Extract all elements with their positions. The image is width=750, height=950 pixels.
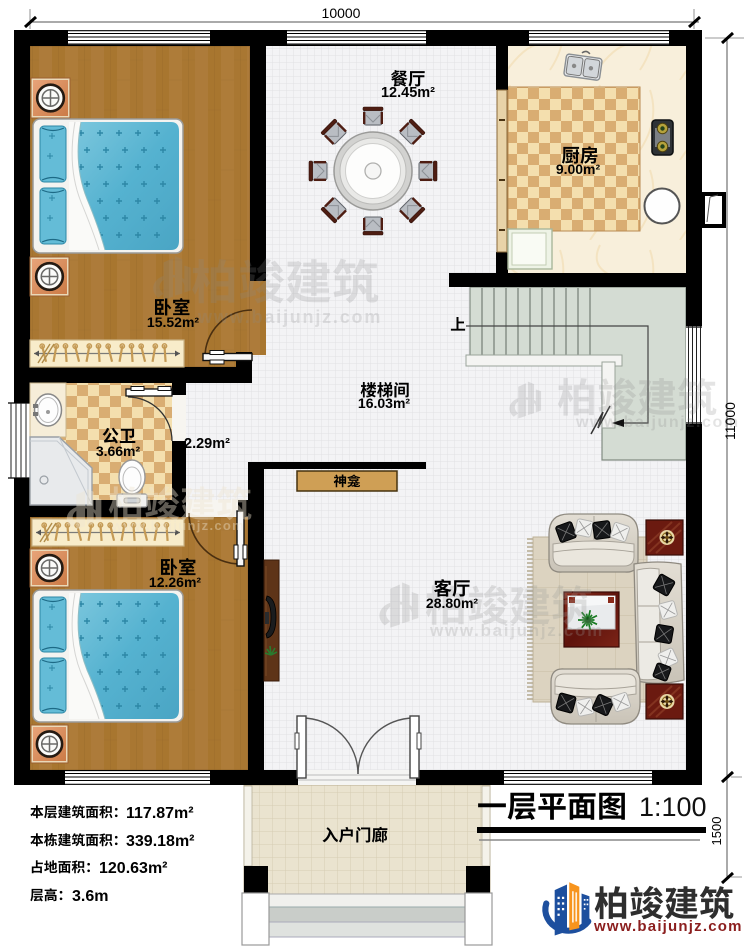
svg-text:11000: 11000 (722, 402, 738, 440)
svg-text:www.baijunjz.com: www.baijunjz.com (111, 518, 245, 533)
svg-text:10000: 10000 (322, 5, 361, 21)
svg-text:www.baijunjz.com: www.baijunjz.com (197, 307, 382, 327)
svg-text:www.baijunjz.com: www.baijunjz.com (575, 414, 740, 431)
svg-text:15.52m²: 15.52m² (147, 314, 199, 330)
svg-text:28.80m²: 28.80m² (426, 595, 478, 611)
svg-text:1:100: 1:100 (639, 792, 707, 822)
svg-text:9.00m²: 9.00m² (556, 161, 601, 177)
svg-text:2.29m²: 2.29m² (184, 436, 230, 452)
svg-text:12.45m²: 12.45m² (381, 85, 435, 101)
svg-text:339.18m²: 339.18m² (126, 833, 195, 850)
svg-text:1500: 1500 (709, 817, 724, 846)
svg-text:12.26m²: 12.26m² (149, 574, 201, 590)
svg-text:www.baijunjz.com: www.baijunjz.com (429, 621, 604, 640)
svg-text:3.66m²: 3.66m² (96, 443, 141, 459)
svg-text:16.03m²: 16.03m² (358, 395, 410, 411)
svg-text:www.baijunjz.com: www.baijunjz.com (593, 918, 743, 935)
svg-text:120.63m²: 120.63m² (99, 860, 168, 877)
svg-text:3.6m: 3.6m (72, 888, 108, 905)
svg-text:117.87m²: 117.87m² (126, 805, 194, 822)
